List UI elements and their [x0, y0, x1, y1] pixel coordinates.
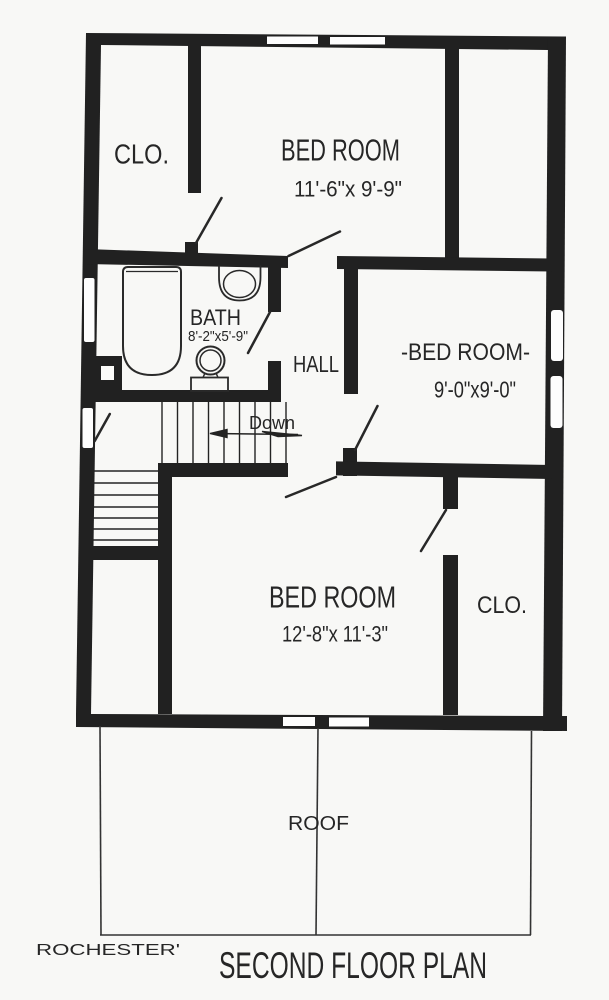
svg-text:ROCHESTER': ROCHESTER'	[36, 942, 180, 959]
svg-text:HALL: HALL	[293, 351, 339, 377]
svg-text:CLO.: CLO.	[477, 592, 527, 619]
svg-text:CLO.: CLO.	[114, 139, 169, 170]
svg-text:12'-8"x 11'-3": 12'-8"x 11'-3"	[282, 622, 388, 647]
svg-text:Down: Down	[249, 413, 295, 433]
svg-text:BED ROOM: BED ROOM	[269, 580, 396, 615]
svg-text:BATH: BATH	[190, 305, 241, 330]
svg-text:-BED ROOM-: -BED ROOM-	[401, 339, 530, 366]
svg-text:9'-0"x9'-0": 9'-0"x9'-0"	[434, 377, 516, 403]
svg-text:SECOND FLOOR PLAN: SECOND FLOOR PLAN	[219, 945, 487, 986]
svg-text:ROOF: ROOF	[288, 813, 349, 835]
svg-text:11'-6"x 9'-9": 11'-6"x 9'-9"	[294, 177, 402, 202]
svg-text:BED ROOM: BED ROOM	[281, 133, 400, 168]
svg-text:8'-2"x5'-9": 8'-2"x5'-9"	[188, 328, 248, 345]
